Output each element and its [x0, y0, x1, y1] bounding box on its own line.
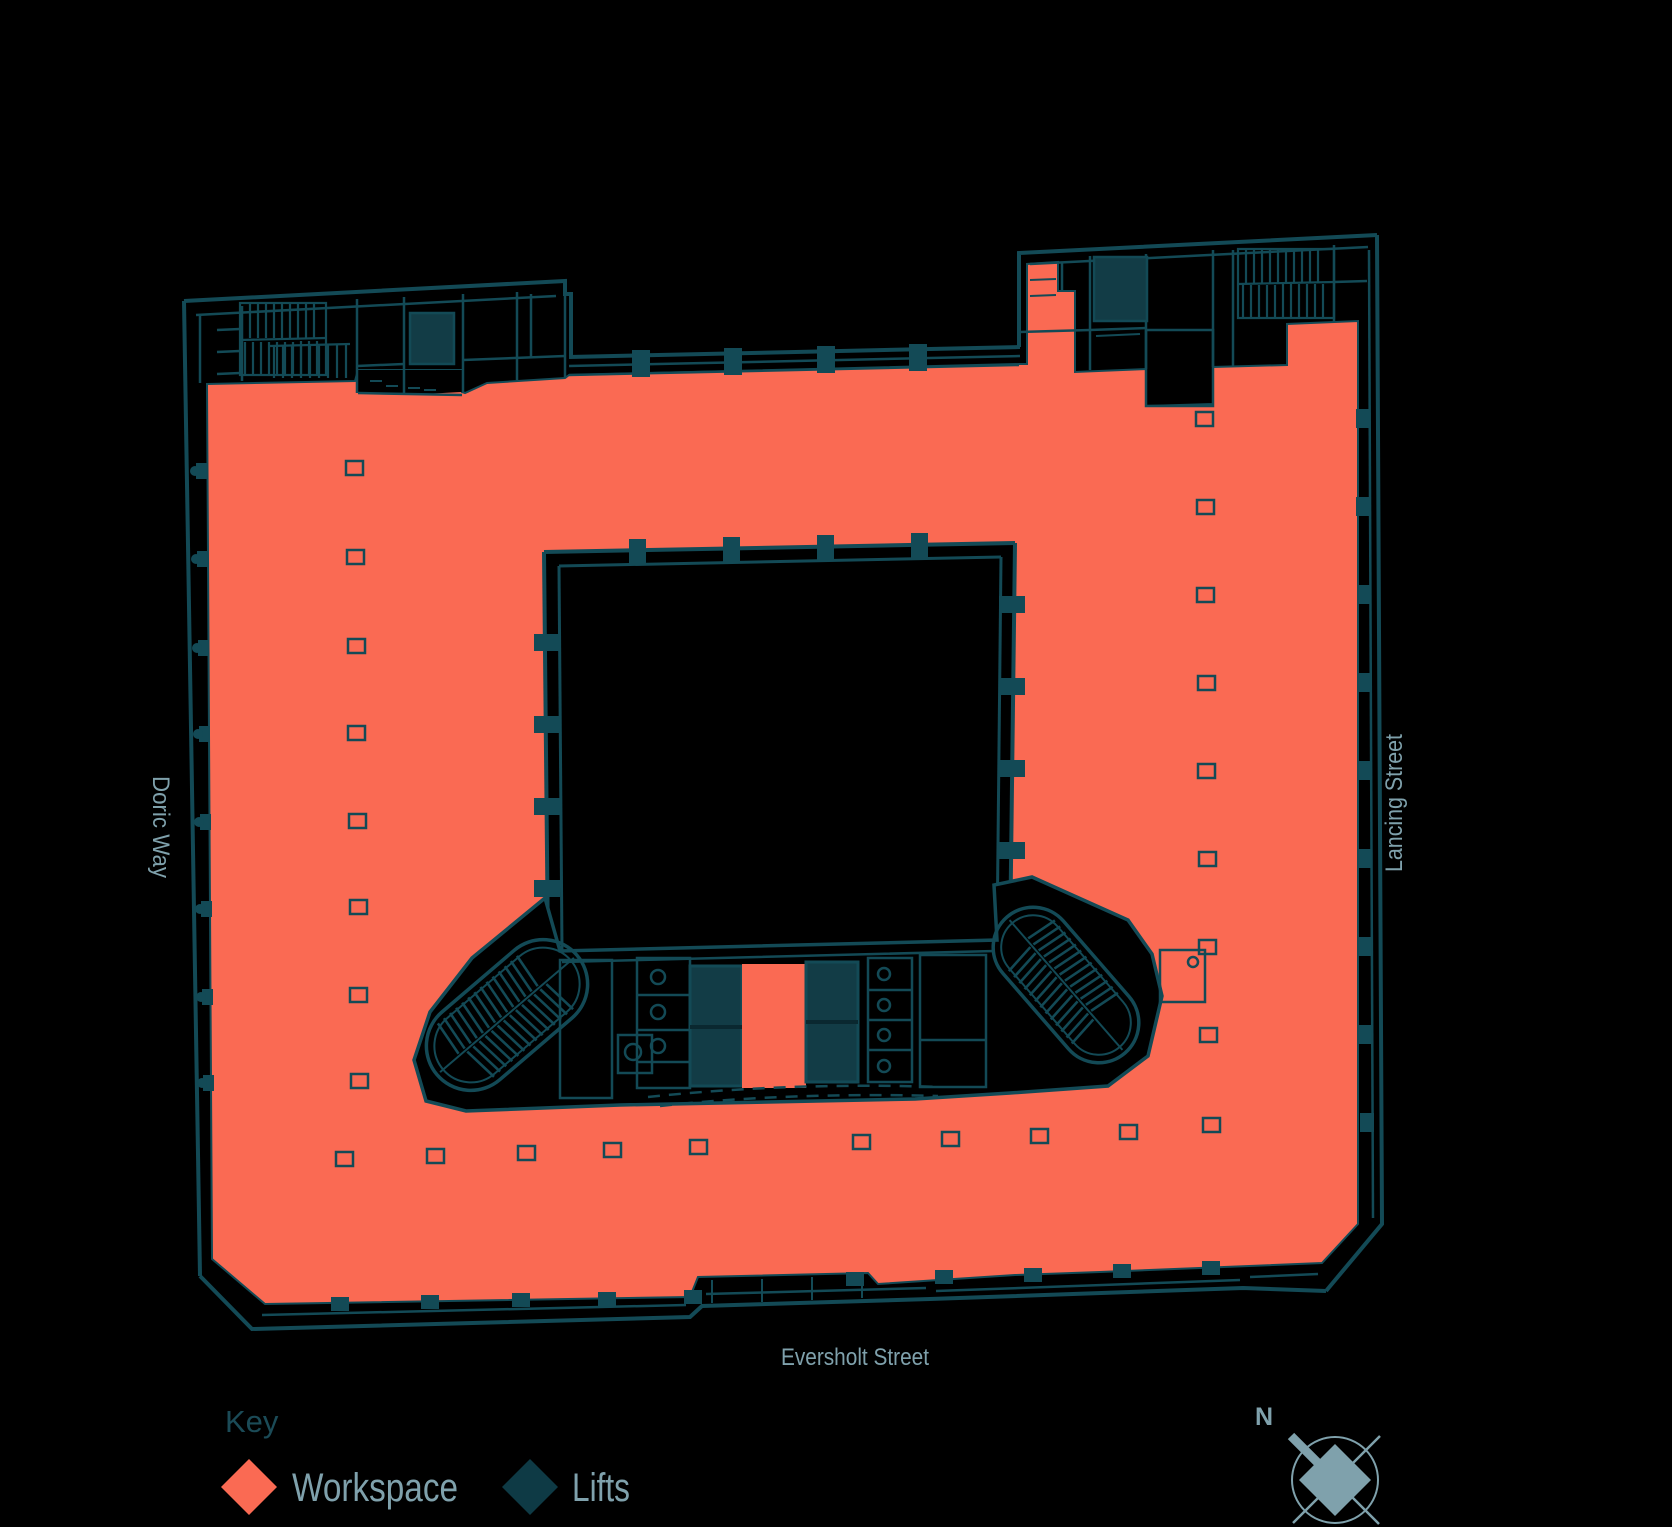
svg-text:Doric Way: Doric Way: [147, 776, 174, 878]
svg-text:Workspace: Workspace: [292, 1466, 458, 1510]
svg-text:N: N: [1255, 1403, 1273, 1431]
svg-text:Eversholt Street: Eversholt Street: [781, 1344, 929, 1371]
svg-text:Lancing Street: Lancing Street: [1381, 734, 1408, 872]
svg-text:Lifts: Lifts: [572, 1466, 630, 1510]
svg-text:Key: Key: [225, 1404, 279, 1439]
